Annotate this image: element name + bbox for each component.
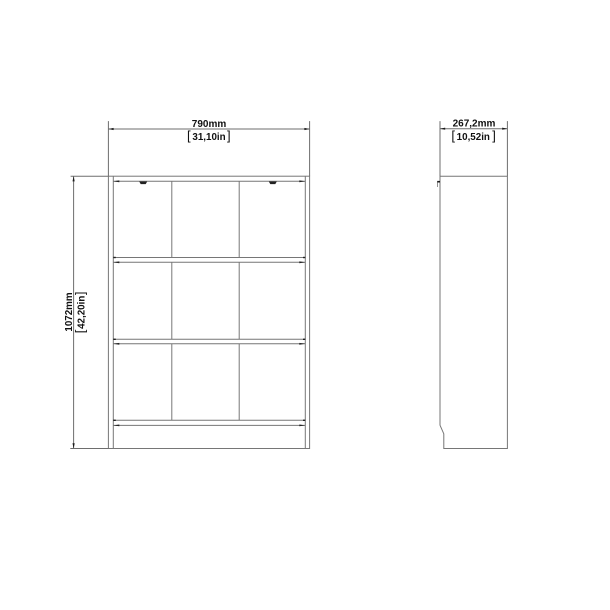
svg-text:10,52in: 10,52in bbox=[457, 132, 490, 143]
svg-text:[: [ bbox=[187, 128, 191, 143]
svg-text:42,20in: 42,20in bbox=[77, 296, 88, 329]
svg-text:]: ] bbox=[227, 128, 231, 143]
svg-text:267,2mm: 267,2mm bbox=[453, 119, 496, 130]
svg-text:]: ] bbox=[492, 128, 496, 143]
svg-text:]: ] bbox=[73, 291, 88, 295]
svg-text:[: [ bbox=[451, 128, 455, 143]
svg-text:31,10in: 31,10in bbox=[192, 132, 225, 143]
svg-text:[: [ bbox=[73, 329, 88, 333]
svg-text:790mm: 790mm bbox=[192, 119, 227, 130]
svg-text:1072mm: 1072mm bbox=[64, 292, 75, 332]
